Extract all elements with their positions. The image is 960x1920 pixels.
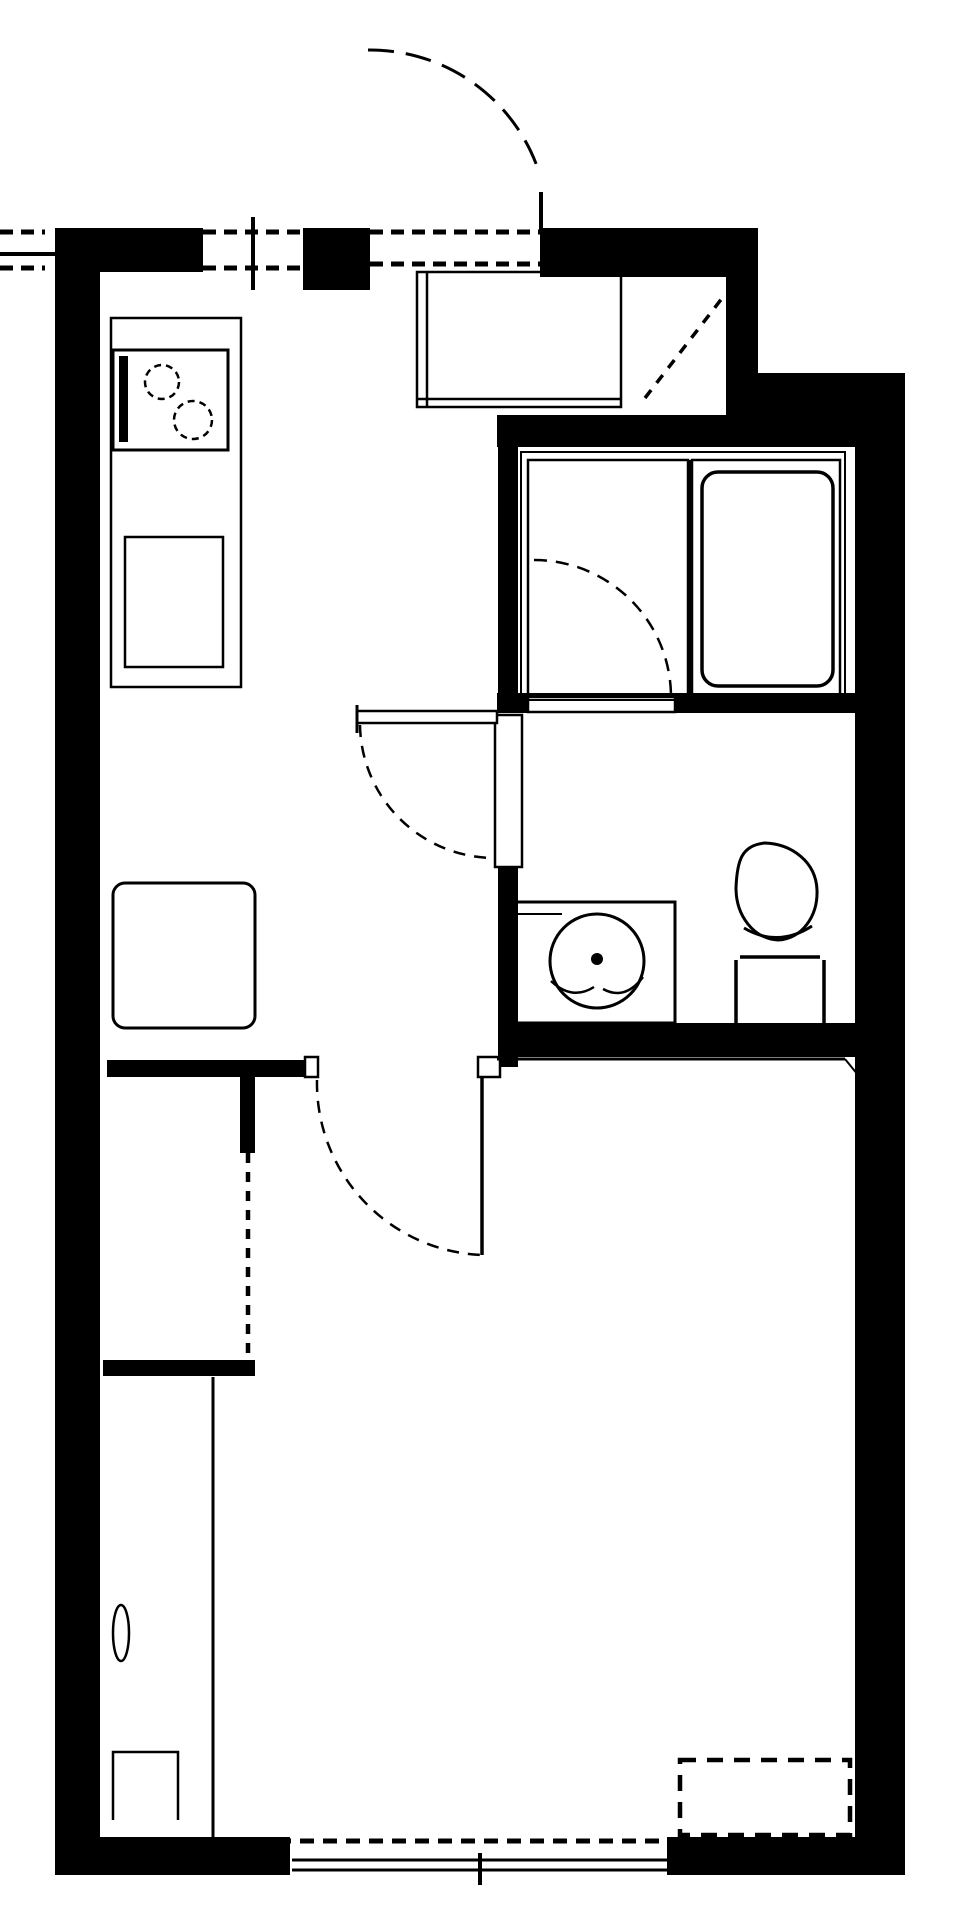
top-wall-mid: [303, 228, 370, 290]
bath-left-wall: [498, 447, 518, 713]
entrance-door-arc: [368, 50, 540, 175]
side-strip-niche: [113, 1752, 178, 1820]
left-wall: [55, 228, 100, 1875]
washroom: [515, 843, 824, 1023]
stove-side-bar: [119, 356, 128, 442]
bedroom: [113, 1059, 858, 1837]
shoe-cabinet: [417, 272, 621, 407]
shower-area: [528, 460, 688, 697]
hall-doors: [317, 705, 497, 1255]
door-openings: [305, 695, 675, 1077]
bottom-wall-left: [55, 1837, 290, 1875]
right-wall: [855, 373, 905, 1875]
bathtub-outer: [692, 460, 840, 697]
walls: [55, 228, 905, 1875]
floor-plan: [0, 0, 960, 1920]
unit-bath-outline: [521, 452, 845, 700]
washroom-door-opening: [495, 715, 522, 867]
stove-burner-2-icon: [174, 401, 212, 439]
washing-machine-hub-icon: [591, 953, 603, 965]
aircon-dashed-box: [680, 1760, 850, 1835]
bedroom-door-frame-left: [305, 1057, 318, 1077]
kitchen: [111, 318, 255, 1028]
hall-door-arc: [360, 725, 492, 858]
top-wall-right: [540, 228, 758, 277]
washing-machine-water-line: [551, 977, 643, 993]
kitchen-sink: [125, 537, 223, 667]
bottom-wall-right: [667, 1837, 905, 1875]
refrigerator-space: [113, 883, 255, 1028]
toilet-bowl-icon: [736, 843, 817, 940]
top-wall-left: [55, 228, 203, 272]
stove-burner-1-icon: [145, 365, 179, 399]
side-strip-handle-icon: [113, 1605, 129, 1661]
washroom-bottom-wall: [515, 1023, 905, 1057]
toilet-seat-line: [744, 926, 812, 938]
entry-side-wall: [726, 270, 758, 420]
bedroom-top-wall: [107, 1060, 307, 1077]
bathtub: [702, 472, 833, 686]
closet-partition-top: [240, 1077, 255, 1153]
two-burner-stove: [113, 350, 228, 450]
closet-bottom-wall: [103, 1360, 255, 1376]
bathroom: [521, 452, 845, 700]
bedroom-door-frame-right: [478, 1057, 500, 1077]
bedroom-door-arc: [317, 1080, 482, 1255]
floor-plan-drawing: [0, 0, 960, 1920]
bath-door-arc: [534, 560, 671, 697]
hall-door-leaf: [357, 711, 497, 723]
entry-step-diagonal: [645, 297, 723, 398]
